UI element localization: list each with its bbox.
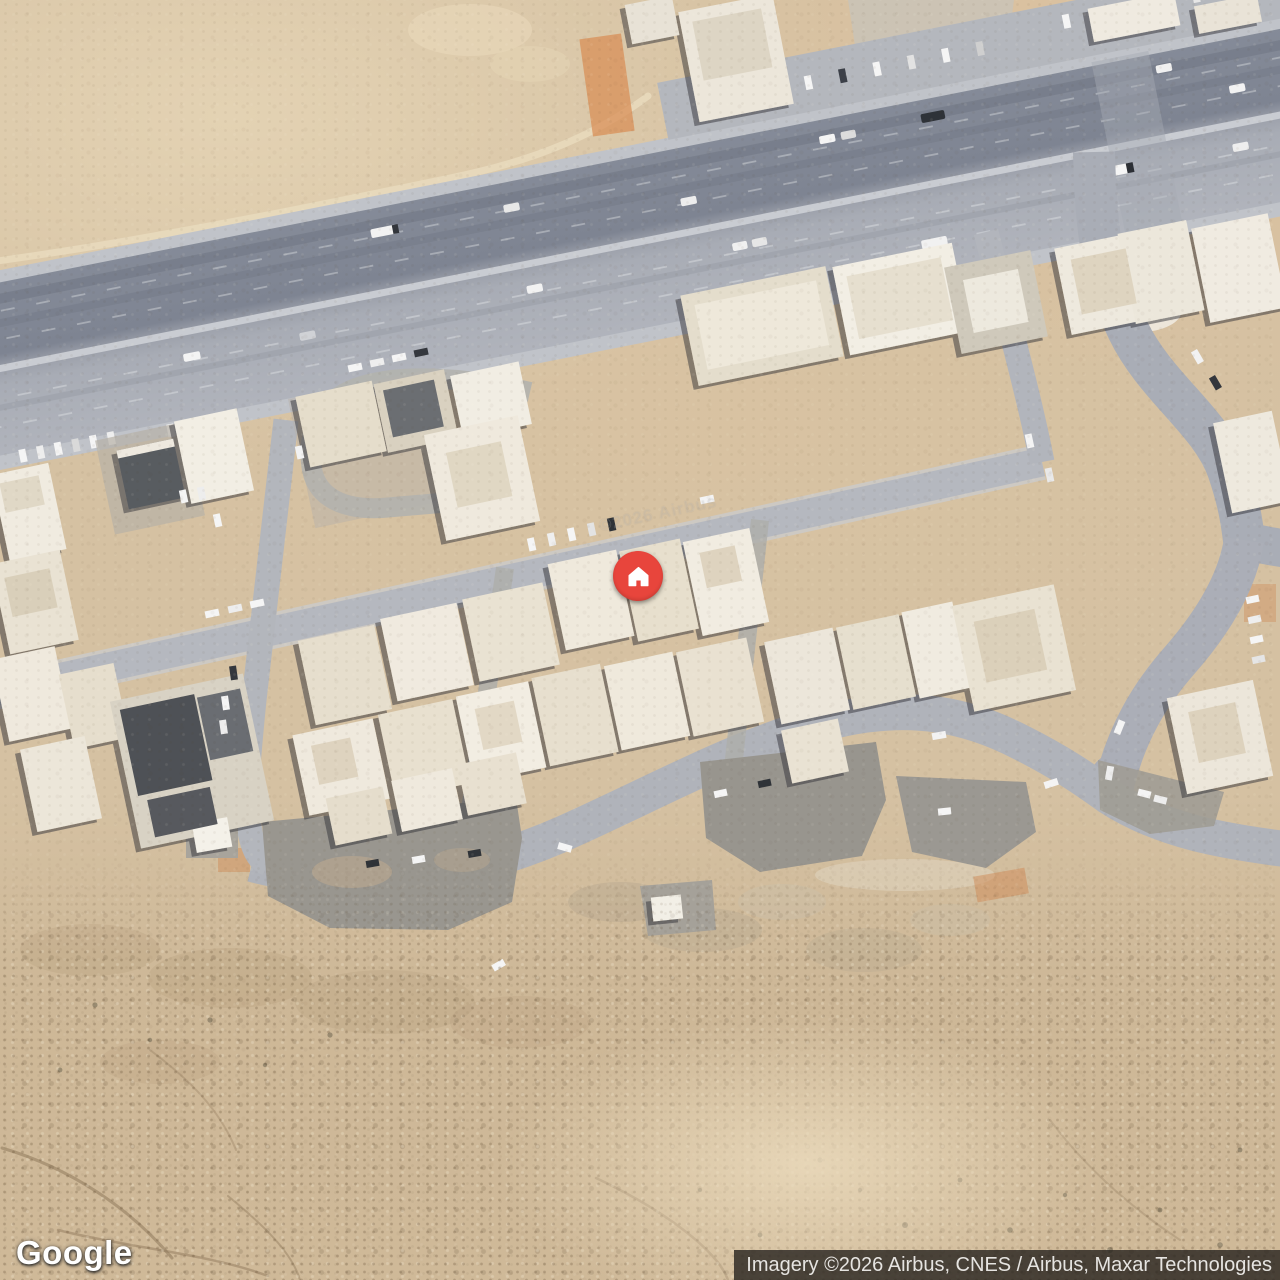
home-marker[interactable] xyxy=(613,551,663,601)
buildings-layer xyxy=(0,0,1280,922)
google-logo[interactable]: Google xyxy=(16,1234,133,1272)
sand-tone-overlay xyxy=(0,0,1280,1280)
parked-cars xyxy=(0,0,1277,467)
desert-cracks xyxy=(2,1050,1180,1280)
highway-cars xyxy=(165,50,1264,395)
highway xyxy=(0,0,1280,479)
rocky-texture xyxy=(0,860,1280,1280)
sand-tone-overlay xyxy=(0,0,1280,1280)
sand-hill-highlight xyxy=(0,0,1280,1280)
attribution-bar: Imagery ©2026 Airbus, CNES / Airbus, Max… xyxy=(734,1250,1280,1280)
street-cars xyxy=(179,348,1266,972)
imagery-watermark: ©2026 Airbus xyxy=(597,492,719,537)
sand-tone-overlay xyxy=(0,0,1280,1280)
desert-bushes xyxy=(58,1002,1243,1253)
sand-tone-overlay xyxy=(0,0,1280,1280)
map-canvas[interactable]: ©2026 Airbus Google Imagery ©2026 Airbus… xyxy=(0,0,1280,1280)
house-icon xyxy=(625,563,652,590)
building-details xyxy=(0,8,1246,837)
ground-patches xyxy=(20,0,1276,1084)
satellite-scene xyxy=(0,0,1280,1280)
parking-pads xyxy=(186,742,1224,936)
attribution-text: Imagery ©2026 Airbus, CNES / Airbus, Max… xyxy=(746,1254,1272,1276)
dirt-tracks xyxy=(0,4,648,305)
sand-texture xyxy=(0,0,1280,1280)
